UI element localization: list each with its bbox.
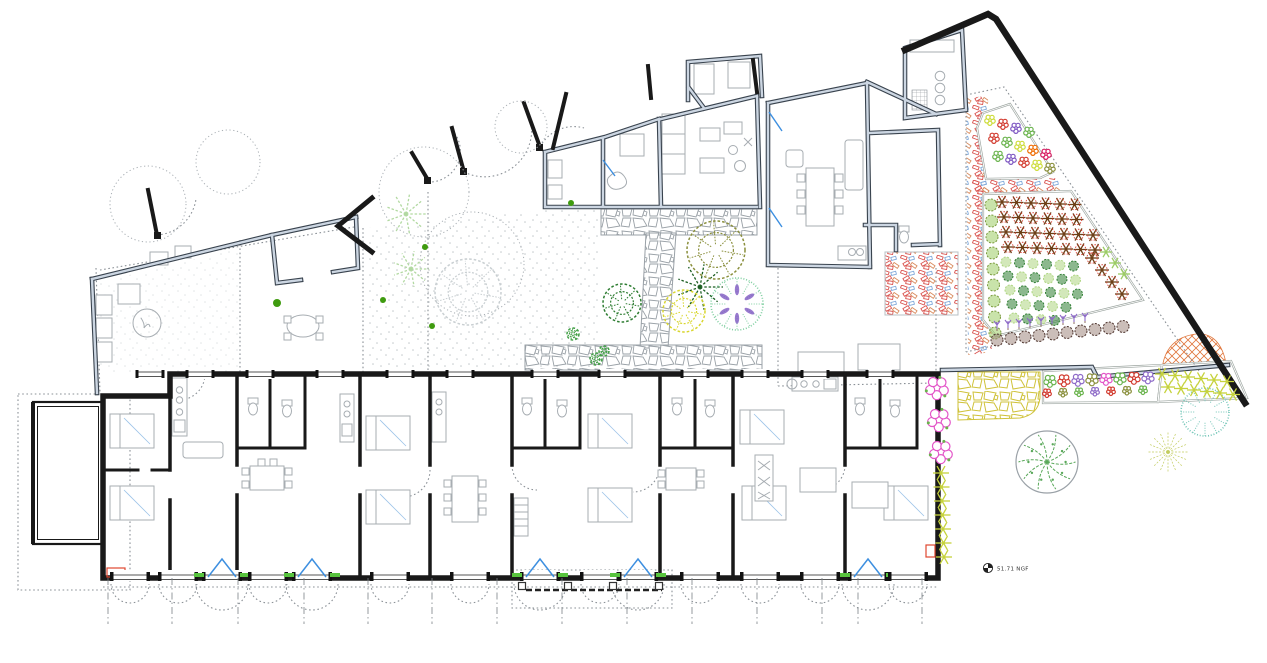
window: [681, 369, 710, 379]
crop-row: [1044, 273, 1054, 283]
small-plant: [380, 297, 386, 303]
crop-row: [1057, 274, 1067, 284]
small-plant: [422, 244, 428, 250]
hedge-column: [985, 199, 997, 211]
yellow-stone-terrace: [958, 372, 1040, 420]
crop-row: [1046, 287, 1056, 297]
window: [136, 369, 165, 379]
pergola-post: [610, 583, 617, 590]
site-plan-page: 51.71 NGF: [0, 0, 1267, 663]
site-plan-drawing: 51.71 NGF: [0, 0, 1267, 663]
shrub-row: [1061, 327, 1073, 339]
hedge-column: [986, 231, 998, 243]
crop-row: [1005, 285, 1015, 295]
crop-row: [1007, 299, 1017, 309]
flagstone-path: [525, 345, 762, 370]
rubble-bed: [885, 252, 958, 315]
crop-row: [1071, 275, 1081, 285]
small-plant: [273, 299, 281, 307]
window: [741, 369, 770, 379]
shrub-row: [1019, 331, 1031, 343]
flagstone-path: [601, 209, 757, 235]
pergola-post: [656, 583, 663, 590]
crop-row: [1034, 301, 1044, 311]
window: [446, 369, 475, 379]
small-plant: [429, 323, 435, 329]
shrub-row: [1103, 322, 1115, 334]
crop-row: [1032, 287, 1042, 297]
crop-row: [1017, 272, 1027, 282]
shrub-row: [991, 334, 1003, 346]
hedge-column: [986, 215, 998, 227]
window: [866, 369, 895, 379]
hedge-column: [987, 263, 999, 275]
crop-row: [1015, 258, 1025, 268]
crop-row: [1003, 271, 1013, 281]
crop-row: [1030, 273, 1040, 283]
shrub-row: [1075, 325, 1087, 337]
crop-row: [1073, 289, 1083, 299]
crop-row: [1048, 301, 1058, 311]
crop-row: [1019, 286, 1029, 296]
hedge-column: [987, 247, 999, 259]
window: [186, 369, 215, 379]
hedge-column: [988, 295, 1000, 307]
pergola-post: [565, 583, 572, 590]
crop-row: [1055, 260, 1065, 270]
shrub-row: [1089, 324, 1101, 336]
window: [386, 369, 415, 379]
crop-row: [1001, 257, 1011, 267]
window: [801, 369, 830, 379]
crop-row: [1061, 302, 1071, 312]
shrub-row: [1047, 328, 1059, 340]
small-plant: [568, 200, 574, 206]
crop-row: [1021, 300, 1031, 310]
window: [531, 369, 560, 379]
pergola-post: [519, 583, 526, 590]
shrub-row: [1005, 333, 1017, 345]
window: [246, 369, 275, 379]
level-value: 51.71 NGF: [997, 567, 1029, 573]
shrub-row: [1033, 330, 1045, 342]
crop-row: [1069, 261, 1079, 271]
shrub-row: [1117, 321, 1129, 333]
window: [598, 369, 627, 379]
crop-row: [1042, 259, 1052, 269]
crop-row: [1028, 259, 1038, 269]
crop-row: [1059, 288, 1069, 298]
window: [316, 369, 345, 379]
hedge-column: [988, 279, 1000, 291]
